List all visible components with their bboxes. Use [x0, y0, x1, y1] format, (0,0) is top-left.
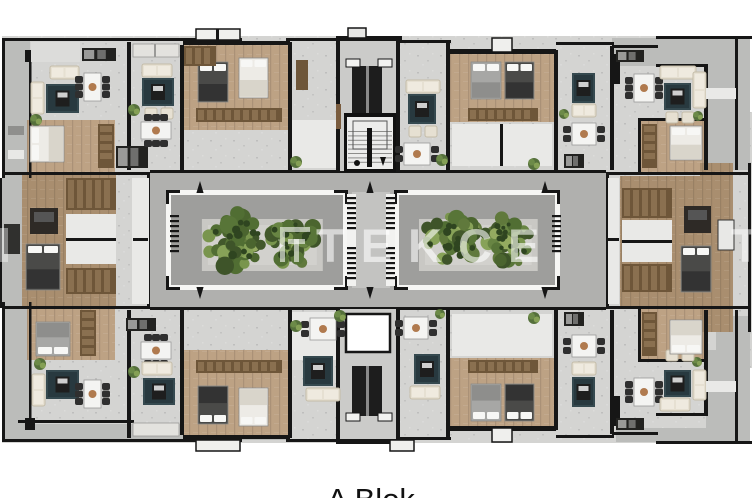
svg-text:TEKCE: TEKCE — [316, 219, 555, 272]
svg-text:T: T — [731, 219, 754, 272]
svg-text:A Blok: A Blok — [327, 482, 415, 498]
